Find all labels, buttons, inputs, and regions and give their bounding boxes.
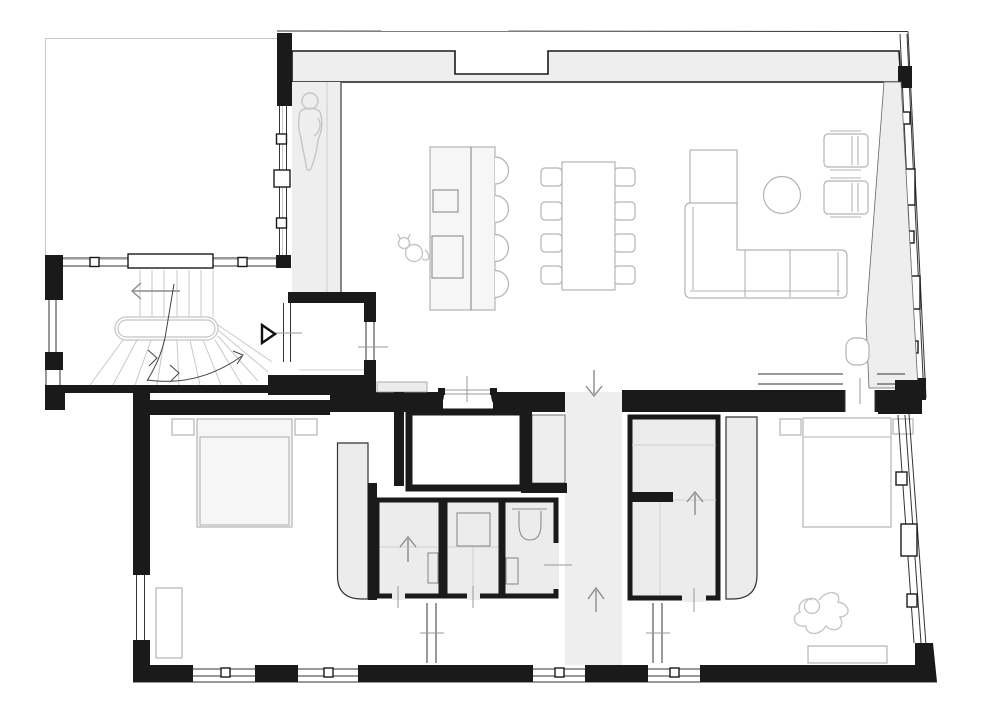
bar-stool <box>495 196 509 223</box>
bar-stool <box>495 271 509 298</box>
floor-plan-drawing <box>0 0 1000 718</box>
built-in-wardrobe-curved <box>726 417 757 599</box>
ensuite-bathroom <box>628 417 718 612</box>
entrance-triangle-marker <box>262 325 275 343</box>
coffee-table-round <box>764 177 801 214</box>
hall-closet-niche <box>532 415 565 483</box>
armchair <box>824 131 868 170</box>
floor-plan-page <box>0 0 1000 718</box>
dining-chair <box>614 234 635 252</box>
bar-stool <box>495 235 509 262</box>
stair-treads-upper <box>140 270 213 317</box>
desk-chair <box>846 338 869 365</box>
dining-chair <box>541 266 562 284</box>
nightstand <box>172 419 194 435</box>
bedroom-right <box>780 414 937 682</box>
lounge <box>685 131 868 298</box>
dresser <box>156 588 182 658</box>
double-bed <box>197 419 292 527</box>
storage-room <box>409 412 523 488</box>
corner-sofa <box>685 203 847 298</box>
dining-chair <box>541 234 562 252</box>
nightstand <box>780 419 801 435</box>
bar-stool <box>495 157 509 184</box>
terrace-court <box>46 39 283 260</box>
entry-mat <box>377 382 427 392</box>
wc <box>503 500 572 596</box>
nightstand <box>295 419 317 435</box>
window-post <box>274 170 290 187</box>
utility-room <box>445 500 501 608</box>
entry-vestibule <box>262 292 567 412</box>
window-lintel <box>128 254 213 268</box>
dining-chair <box>541 168 562 186</box>
kitchen <box>430 147 509 310</box>
bedroom-left <box>133 400 330 682</box>
dining-chair <box>541 202 562 220</box>
kitchen-island <box>430 147 495 310</box>
dining-table <box>562 162 615 290</box>
hallway-floor <box>565 392 622 665</box>
bottom-exterior-wall <box>133 665 937 682</box>
shower-room <box>377 500 441 608</box>
dining-chair <box>614 266 635 284</box>
dining-chair <box>614 168 635 186</box>
armchair <box>824 178 868 217</box>
dresser <box>808 646 887 663</box>
window-mullion <box>277 134 287 144</box>
double-bed <box>803 418 891 527</box>
cat-top-view <box>398 234 429 262</box>
top-wall-poche <box>292 51 901 82</box>
stairwell <box>45 254 290 410</box>
person-lying-top-view <box>794 593 848 634</box>
dining-area <box>541 162 635 290</box>
built-in-wardrobe-curved <box>338 443 369 599</box>
dining-chair <box>614 202 635 220</box>
